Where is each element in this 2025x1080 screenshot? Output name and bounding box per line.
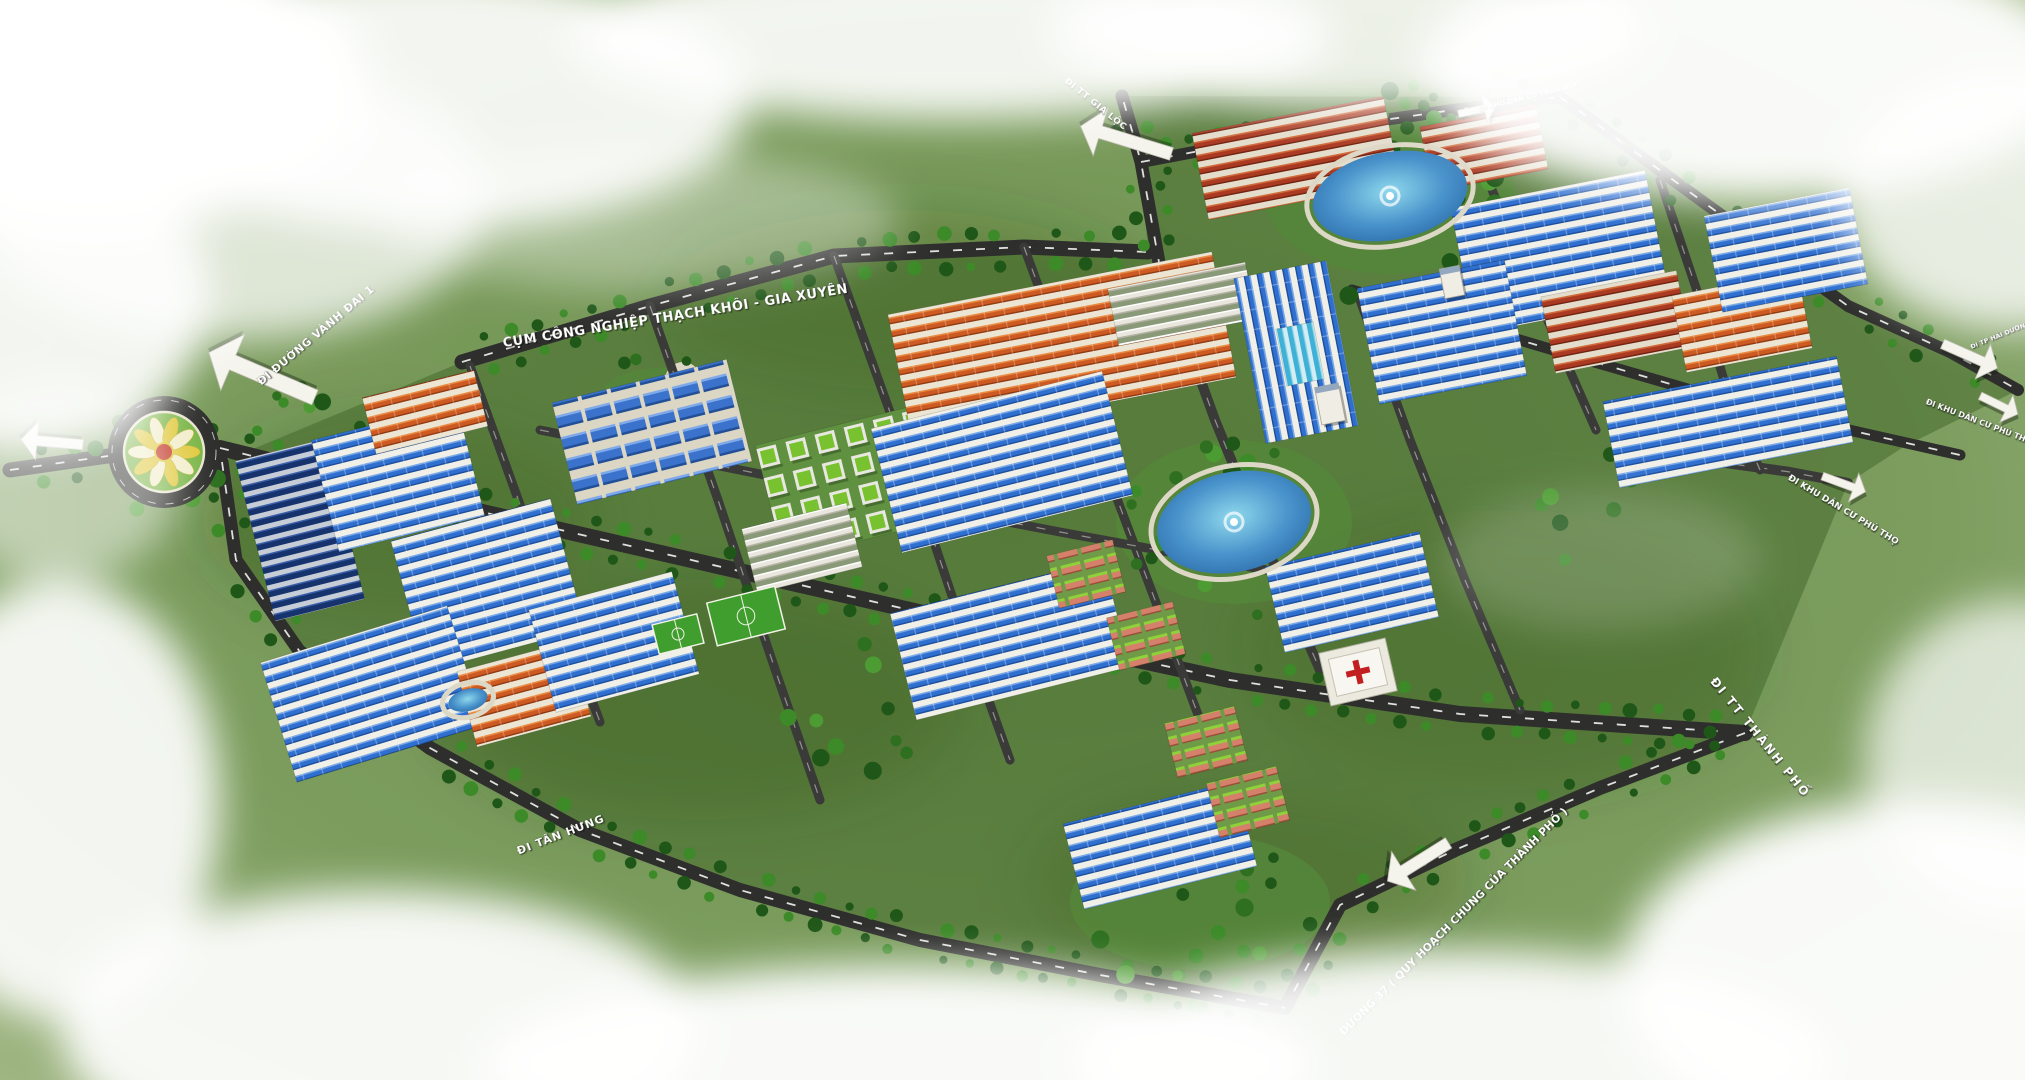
- tree: [1888, 339, 1897, 348]
- tree: [890, 735, 901, 746]
- tree: [1269, 448, 1279, 458]
- tree: [812, 749, 830, 767]
- tree: [1201, 653, 1212, 664]
- tree: [1571, 700, 1580, 709]
- tree: [1163, 234, 1174, 245]
- tree: [1131, 558, 1143, 570]
- tree: [479, 488, 492, 501]
- tree: [831, 925, 841, 935]
- tree: [704, 892, 714, 902]
- tree: [1482, 727, 1495, 740]
- tree: [587, 304, 597, 314]
- tree: [1294, 943, 1307, 956]
- tree: [1084, 231, 1095, 242]
- tree: [1284, 664, 1296, 676]
- tree: [209, 492, 219, 502]
- tree: [1048, 946, 1056, 954]
- tree: [659, 842, 672, 855]
- tree: [442, 770, 456, 784]
- tree: [515, 809, 529, 823]
- tree: [484, 760, 494, 770]
- tree: [1502, 833, 1516, 847]
- tree: [965, 227, 978, 240]
- tree: [625, 857, 637, 869]
- tree: [890, 909, 903, 922]
- tree: [1393, 715, 1407, 729]
- tree: [608, 555, 618, 565]
- tree: [1865, 325, 1874, 334]
- tree: [613, 295, 627, 309]
- tree: [649, 870, 658, 879]
- tree: [1138, 671, 1151, 684]
- tree: [1200, 440, 1213, 453]
- tree: [532, 788, 541, 797]
- tree: [1303, 917, 1317, 931]
- tree: [1337, 705, 1349, 717]
- tree: [828, 738, 845, 755]
- tree: [791, 596, 801, 606]
- tree: [1923, 324, 1934, 335]
- tree: [1654, 738, 1665, 749]
- tree: [562, 509, 571, 518]
- tree: [1176, 888, 1189, 901]
- tree: [1672, 734, 1686, 748]
- tree: [591, 516, 602, 527]
- tree: [1619, 755, 1633, 769]
- tree: [886, 261, 897, 272]
- tree: [1564, 779, 1575, 790]
- tree: [1048, 256, 1063, 271]
- tree: [1653, 704, 1664, 715]
- tree: [1709, 740, 1720, 751]
- tree: [1072, 950, 1081, 959]
- masterplan-canvas: ĐI ĐƯỜNG VÀNH ĐAI 1 CỤM CÔNG NGHIỆP THẠC…: [0, 0, 2025, 1080]
- tree: [670, 534, 681, 545]
- tree: [1421, 721, 1431, 731]
- cloud: [380, 150, 900, 290]
- tree: [1579, 810, 1589, 820]
- tree: [1052, 228, 1061, 237]
- tree: [239, 517, 250, 528]
- tree: [252, 426, 262, 436]
- tree: [713, 576, 725, 588]
- tree: [1710, 709, 1723, 722]
- tree: [273, 439, 284, 450]
- tree: [480, 332, 489, 341]
- tree: [1151, 966, 1162, 977]
- tree: [1126, 185, 1135, 194]
- tree: [212, 524, 225, 537]
- tree: [492, 798, 502, 808]
- tree: [250, 610, 262, 622]
- tree: [1340, 286, 1359, 305]
- tree: [1021, 941, 1033, 953]
- tree: [1400, 121, 1414, 135]
- tree: [1079, 257, 1093, 271]
- tree: [464, 781, 479, 796]
- tree: [516, 357, 527, 368]
- tree: [1235, 899, 1253, 917]
- tree: [264, 633, 277, 646]
- tree: [882, 944, 892, 954]
- tree: [1511, 726, 1523, 738]
- tree: [809, 714, 823, 728]
- tree: [1211, 925, 1226, 940]
- tree: [1479, 849, 1490, 860]
- tree: [1268, 852, 1279, 863]
- tree: [908, 231, 920, 243]
- tree: [808, 917, 823, 932]
- tree: [1598, 734, 1607, 743]
- tree: [607, 822, 617, 832]
- tree: [1141, 121, 1154, 134]
- tree: [881, 702, 894, 715]
- tree: [1899, 311, 1908, 320]
- tree: [850, 576, 863, 589]
- tree: [1660, 774, 1671, 785]
- tree: [1253, 946, 1267, 960]
- tree: [1162, 205, 1172, 215]
- tree: [1539, 728, 1551, 740]
- tree: [861, 933, 870, 942]
- tree: [633, 830, 648, 845]
- tree: [784, 912, 794, 922]
- tree: [1172, 970, 1183, 981]
- tree: [618, 357, 631, 370]
- tree: [557, 797, 572, 812]
- tree: [1226, 437, 1240, 451]
- tree: [864, 762, 882, 780]
- tree: [879, 582, 889, 592]
- tree: [1541, 700, 1553, 712]
- tree: [677, 876, 691, 890]
- tree: [780, 709, 797, 726]
- tree: [580, 547, 593, 560]
- tree: [1235, 879, 1249, 893]
- tree: [940, 923, 954, 937]
- tree: [843, 604, 856, 617]
- tree: [1279, 699, 1290, 710]
- tree: [1564, 731, 1578, 745]
- tree: [1515, 699, 1523, 707]
- tree: [1537, 789, 1549, 801]
- tree: [1813, 296, 1824, 307]
- masterplan-aerial-render: ĐI ĐƯỜNG VÀNH ĐAI 1 CỤM CÔNG NGHIỆP THẠC…: [0, 0, 2025, 1080]
- tree: [1305, 704, 1317, 716]
- tree: [966, 262, 975, 271]
- tree: [1167, 677, 1180, 690]
- tree: [1704, 726, 1717, 739]
- tree: [644, 528, 652, 536]
- tree: [1189, 949, 1204, 964]
- tree: [846, 903, 854, 911]
- tree: [683, 848, 695, 860]
- tree: [1112, 226, 1127, 241]
- tree: [1399, 681, 1411, 693]
- tree: [1138, 240, 1150, 252]
- tree: [1254, 664, 1262, 672]
- tree: [511, 498, 520, 507]
- tree: [1630, 789, 1638, 797]
- tree: [865, 656, 882, 673]
- cloud: [1440, 490, 1760, 630]
- tree: [637, 560, 647, 570]
- tree: [230, 584, 244, 598]
- tree: [865, 908, 877, 920]
- tree: [939, 262, 953, 276]
- tree: [1685, 740, 1695, 750]
- tree: [1313, 672, 1324, 683]
- tree: [1909, 349, 1922, 362]
- tree: [858, 266, 872, 280]
- tree: [617, 522, 631, 536]
- tree: [1646, 747, 1657, 758]
- tree: [540, 345, 550, 355]
- tree: [1091, 930, 1109, 948]
- tree: [1156, 181, 1166, 191]
- tree: [560, 309, 568, 317]
- tree: [792, 886, 801, 895]
- tree: [630, 354, 642, 366]
- tree: [1129, 211, 1143, 225]
- tree: [1623, 703, 1638, 718]
- tree: [314, 393, 331, 410]
- tree: [682, 356, 692, 366]
- tree: [1683, 709, 1695, 721]
- tree: [857, 637, 871, 651]
- tree: [724, 546, 737, 559]
- tree: [782, 278, 795, 291]
- tree: [817, 603, 829, 615]
- tree: [937, 226, 952, 241]
- tree: [814, 892, 826, 904]
- tree: [1358, 873, 1370, 885]
- tree: [988, 230, 1000, 242]
- tree: [244, 434, 255, 445]
- tree: [593, 849, 606, 862]
- tree: [1599, 702, 1612, 715]
- tree: [1237, 945, 1250, 958]
- tree: [993, 934, 1001, 942]
- tree: [1163, 166, 1172, 175]
- tree: [488, 363, 500, 375]
- tree: [1875, 298, 1883, 306]
- tree: [1193, 686, 1202, 695]
- tree: [1429, 688, 1442, 701]
- tree: [1482, 692, 1494, 704]
- tree: [762, 873, 776, 887]
- tree: [1126, 499, 1136, 509]
- tree: [803, 274, 816, 287]
- tree: [1252, 695, 1264, 707]
- tree: [939, 956, 947, 964]
- tree: [1469, 820, 1481, 832]
- tree: [714, 860, 727, 873]
- tree: [1367, 901, 1379, 913]
- tree: [903, 588, 913, 598]
- tree: [1515, 802, 1526, 813]
- tree: [1365, 713, 1376, 724]
- tree: [868, 613, 880, 625]
- tree: [900, 747, 913, 760]
- tree: [1333, 932, 1347, 946]
- tree: [278, 397, 288, 407]
- tree: [1427, 873, 1440, 886]
- tree: [1687, 761, 1701, 775]
- tree: [994, 261, 1006, 273]
- tree: [508, 767, 522, 781]
- tree: [1252, 610, 1263, 621]
- tree: [756, 904, 768, 916]
- tree: [1265, 877, 1277, 889]
- tree: [456, 741, 467, 752]
- tree: [1623, 736, 1632, 745]
- tree: [1715, 750, 1725, 760]
- tree: [964, 925, 978, 939]
- tree: [1491, 808, 1502, 819]
- tree: [907, 261, 922, 276]
